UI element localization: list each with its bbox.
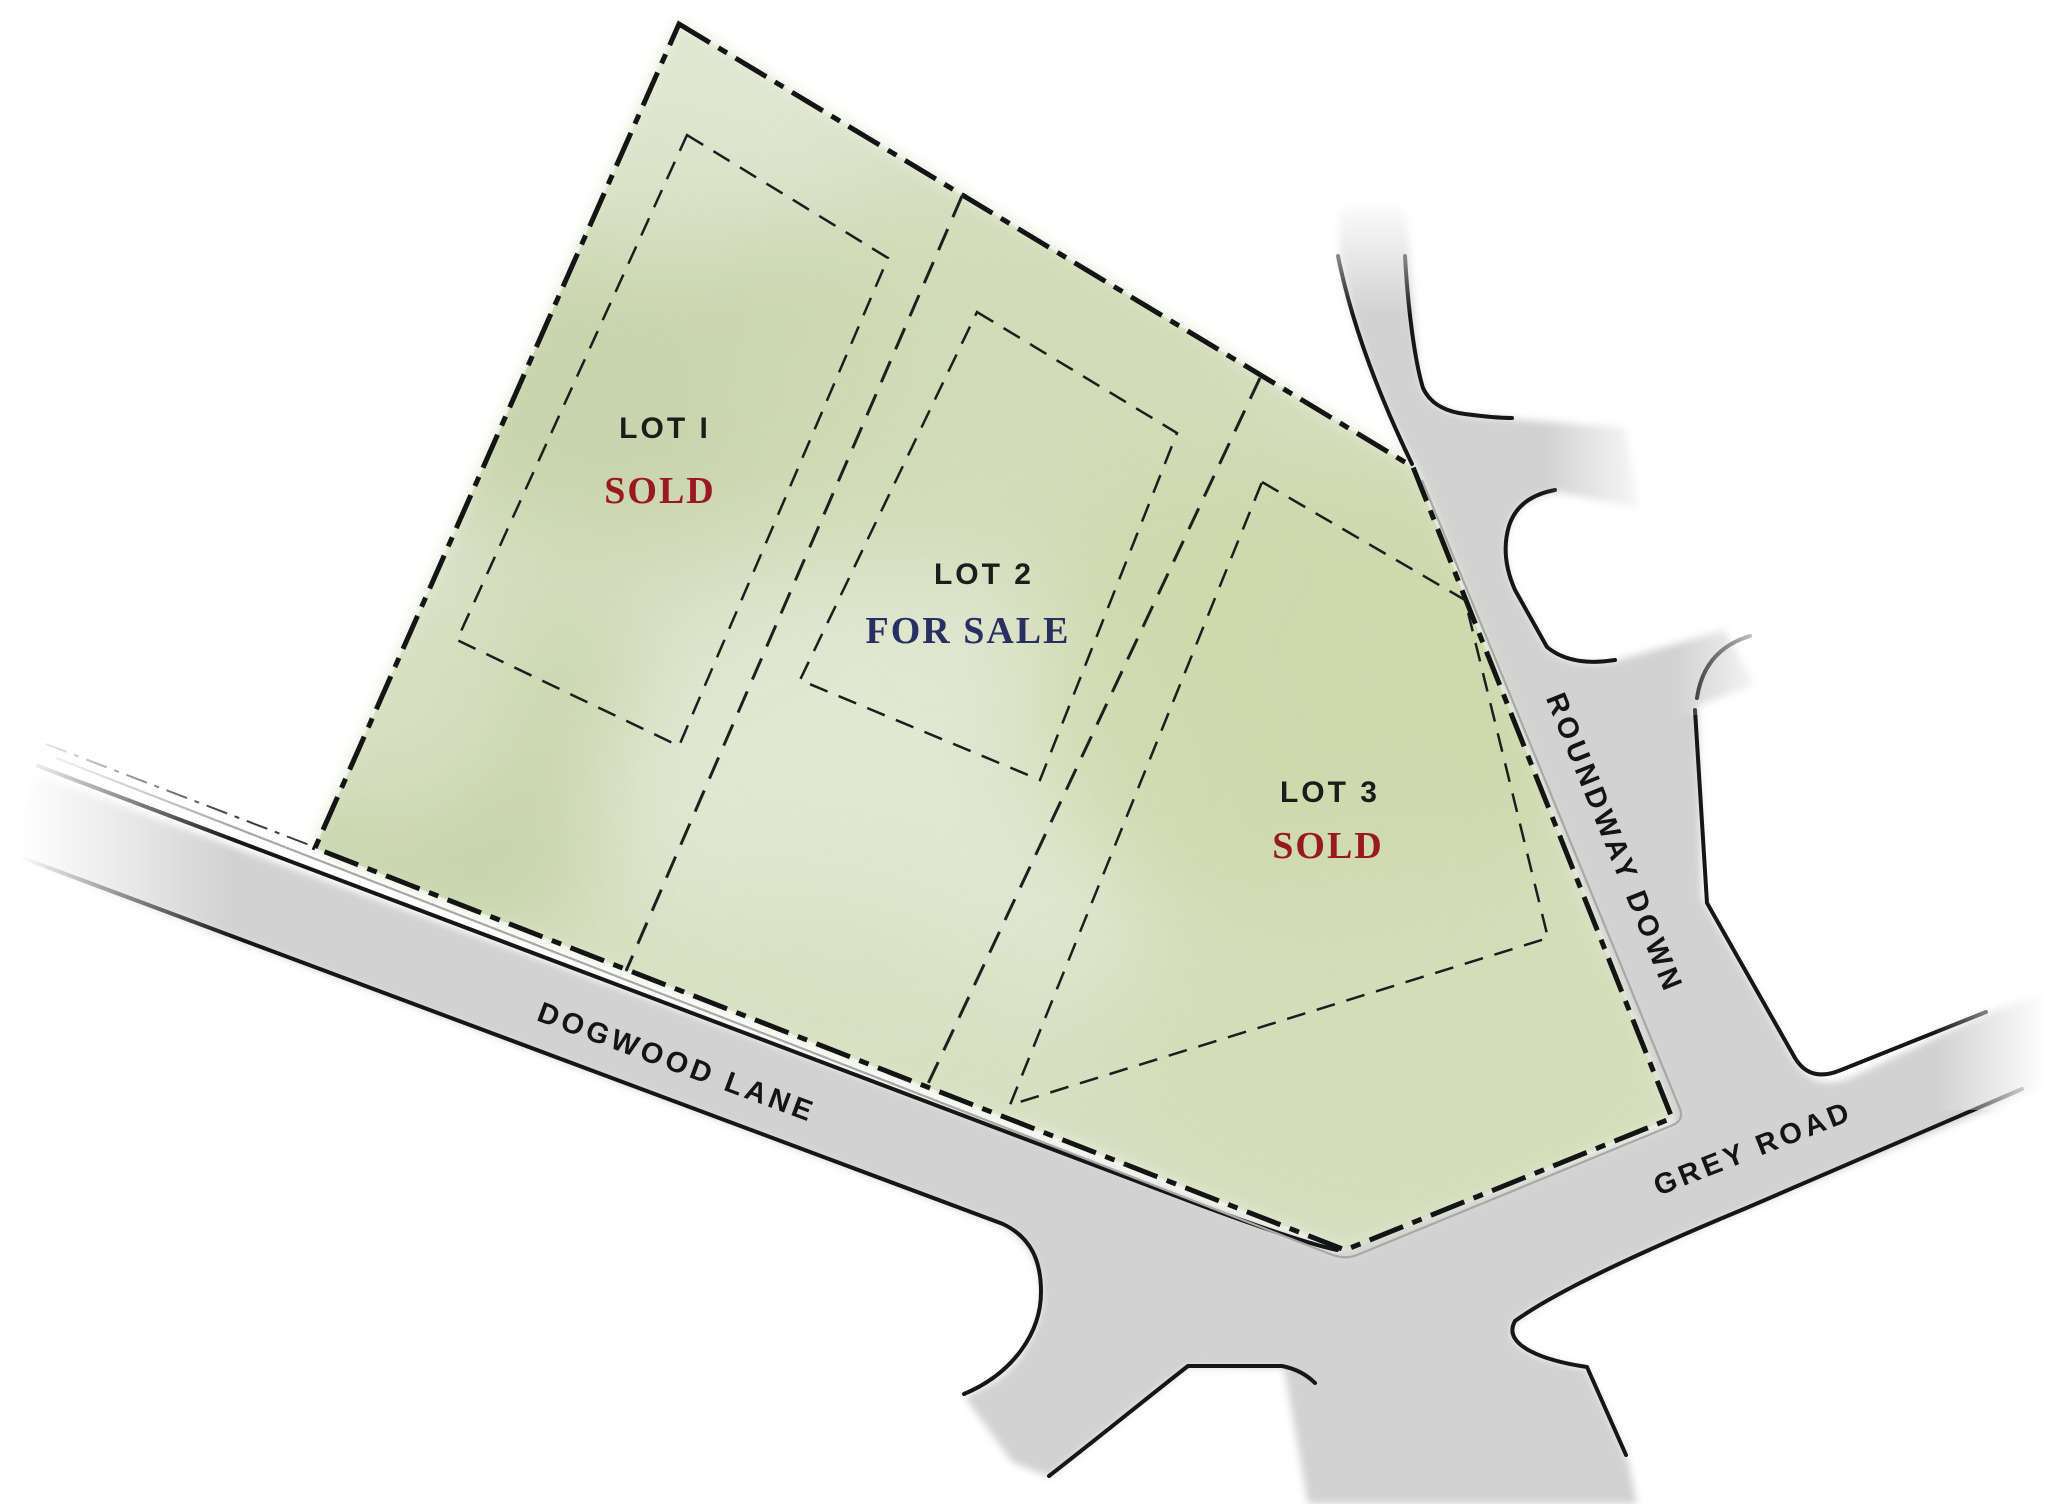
lot-3-status: SOLD xyxy=(1272,825,1383,867)
lot-2-name: LOT 2 xyxy=(934,558,1034,591)
lot-3-name: LOT 3 xyxy=(1280,776,1380,809)
lot-2-status: FOR SALE xyxy=(866,610,1071,652)
lot-1-name: LOT I xyxy=(619,412,711,445)
lot-1-status: SOLD xyxy=(604,470,715,512)
site-plan-map: LOT I SOLD LOT 2 FOR SALE LOT 3 SOLD DOG… xyxy=(0,0,2048,1504)
